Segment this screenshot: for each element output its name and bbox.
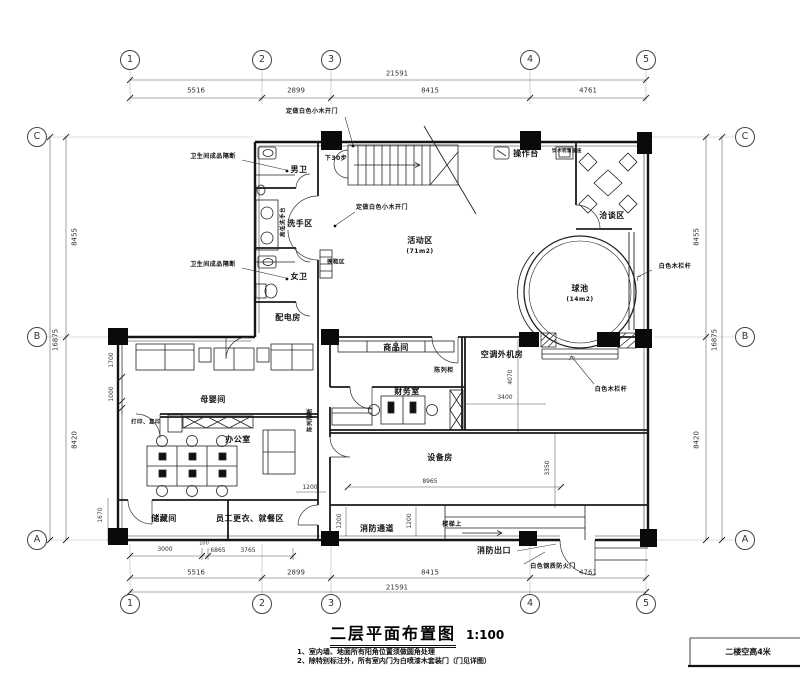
dim-3350: 3350 — [545, 460, 551, 475]
annotation-stairs-up: 楼梯上 — [442, 522, 462, 528]
dim-8965: 8965 — [422, 479, 437, 485]
grid-bubble-col-3-top: 3 — [321, 50, 341, 70]
grid-bubble-col-5-bottom: 5 — [636, 594, 656, 614]
note-line-2: 2、除特别标注外，所有室内门为白喷漆木套装门（门见详图） — [297, 656, 491, 666]
dim-bottom-2: 2899 — [287, 570, 305, 577]
grid-bubble-col-3-bottom: 3 — [321, 594, 341, 614]
dim-top-total: 21591 — [386, 71, 408, 78]
grid-bubble-col-1-bottom: 1 — [120, 594, 140, 614]
dim-3400: 3400 — [497, 395, 512, 401]
annotation-down-steps: 下30步 — [325, 156, 347, 162]
annotation-leaders — [242, 117, 652, 564]
room-label-fire-passage: 消防通道 — [360, 525, 394, 533]
room-label-power-room: 配电房 — [275, 314, 301, 322]
drawing-scale: 1:100 — [466, 628, 504, 642]
title-block-label: 二楼空高4米 — [725, 647, 771, 658]
annotation-white-rail-right: 白色木栏杆 — [659, 264, 692, 270]
dim-bottom-total: 21591 — [386, 585, 408, 592]
grid-bubble-col-2-top: 2 — [252, 50, 272, 70]
grid-bubble-row-a-left: A — [27, 530, 47, 550]
room-label-storage: 储藏间 — [151, 515, 177, 523]
room-label-activity-area: (71m2) — [406, 249, 433, 255]
dim-top-4: 4761 — [579, 88, 597, 95]
room-label-female-wc: 女卫 — [291, 273, 308, 281]
dim-4070: 4070 — [508, 369, 514, 384]
grid-bubble-row-b-right: B — [735, 327, 755, 347]
room-label-counter: 操作台 — [513, 150, 539, 158]
dim-top-3: 8415 — [421, 88, 439, 95]
annotation-toilet-partition-bottom: 卫生间成品隔断 — [190, 262, 236, 268]
grid-bubble-row-c-left: C — [27, 127, 47, 147]
dim-1200-v2: 1200 — [407, 513, 413, 528]
dim-left-2: 8420 — [72, 431, 79, 449]
dim-1670: 1670 — [98, 507, 104, 522]
stairs — [348, 126, 476, 214]
drawing-title-text: 二层平面布置图 — [330, 620, 456, 648]
grid-bubble-col-1-top: 1 — [120, 50, 140, 70]
grid-bubble-col-4-top: 4 — [520, 50, 540, 70]
room-label-nursing: 母婴间 — [200, 396, 226, 404]
grid-bubble-col-4-bottom: 4 — [520, 594, 540, 614]
room-label-goods: 商品间 — [383, 344, 409, 352]
annotation-display-partition: 陈列隔断 — [308, 408, 314, 432]
dim-bottom-4: 4761 — [579, 570, 597, 577]
dim-right-2: 8420 — [694, 431, 701, 449]
floor-plan-sheet: 1 2 3 4 5 1 2 3 4 5 C B A C B A 21591 55… — [0, 0, 800, 676]
grid-bubble-row-b-left: B — [27, 327, 47, 347]
floor-plan-drawing — [0, 0, 800, 676]
room-label-ballpool: 球池 — [572, 285, 589, 293]
dim-top-1: 5516 — [187, 88, 205, 95]
annotation-water-socket: 饮水机留插座 — [552, 150, 582, 155]
grid-bubble-col-5-top: 5 — [636, 50, 656, 70]
dim-left-1: 8455 — [72, 228, 79, 246]
room-label-finance: 财务室 — [394, 388, 420, 396]
room-label-staff-area: 员工更衣、就餐区 — [216, 515, 284, 523]
dim-bottom-3: 8415 — [421, 570, 439, 577]
annotation-custom-door-top: 定做白色小木开门 — [286, 109, 338, 115]
dim-right-1: 8455 — [694, 228, 701, 246]
room-label-meeting: 洽谈区 — [599, 212, 625, 220]
room-label-office: 办公室 — [225, 436, 251, 444]
room-label-equipment: 设备房 — [427, 454, 453, 462]
annotation-white-rail-bottom: 白色木栏杆 — [595, 387, 628, 393]
dim-1200-v1: 1200 — [337, 513, 343, 528]
dim-bottom-1: 5516 — [187, 570, 205, 577]
grid-bubble-row-a-right: A — [735, 530, 755, 550]
grid-extension-lines — [46, 69, 736, 595]
annotation-fire-door: 白色钢质防火门 — [530, 564, 576, 570]
dim-top-2: 2899 — [287, 88, 305, 95]
dim-bottom-inner-3: 6865 — [210, 548, 225, 554]
room-label-wash-area: 洗手区 — [287, 220, 313, 228]
dim-bottom-inner-1: 3000 — [157, 547, 172, 553]
room-label-activity: 活动区 — [407, 237, 433, 245]
dim-1700: 1700 — [109, 352, 115, 367]
grid-bubble-row-c-right: C — [735, 127, 755, 147]
grid-bubble-col-2-bottom: 2 — [252, 594, 272, 614]
room-label-ac-room: 空调外机房 — [481, 351, 524, 359]
dim-bottom-inner-4: 3765 — [240, 548, 255, 554]
dim-bottom-inner-2: 100 — [199, 542, 209, 547]
annotation-custom-door-mid: 定做白色小木开门 — [356, 205, 408, 211]
dim-1000: 1000 — [109, 386, 115, 401]
room-label-display-cabinet: 陈列柜 — [434, 368, 454, 374]
annotation-shoe-area: 换鞋区 — [327, 260, 345, 266]
annotation-hi-lo-basin: 高低洗手台 — [281, 207, 287, 237]
room-label-male-wc: 男卫 — [291, 166, 308, 174]
dim-right-total: 16875 — [712, 329, 719, 351]
dim-left-total: 16875 — [53, 329, 60, 351]
structural-columns — [108, 131, 657, 547]
room-label-fire-exit: 消防出口 — [477, 547, 511, 555]
door-swings — [128, 150, 600, 575]
annotation-print-copy: 打印、复印 — [131, 420, 161, 426]
annotation-toilet-partition-top: 卫生间成品隔断 — [190, 154, 236, 160]
dim-1200-h: 1200 — [302, 485, 317, 491]
room-label-ballpool-area: (14m2) — [566, 297, 593, 303]
drawing-title: 二层平面布置图 1:100 — [330, 620, 504, 648]
